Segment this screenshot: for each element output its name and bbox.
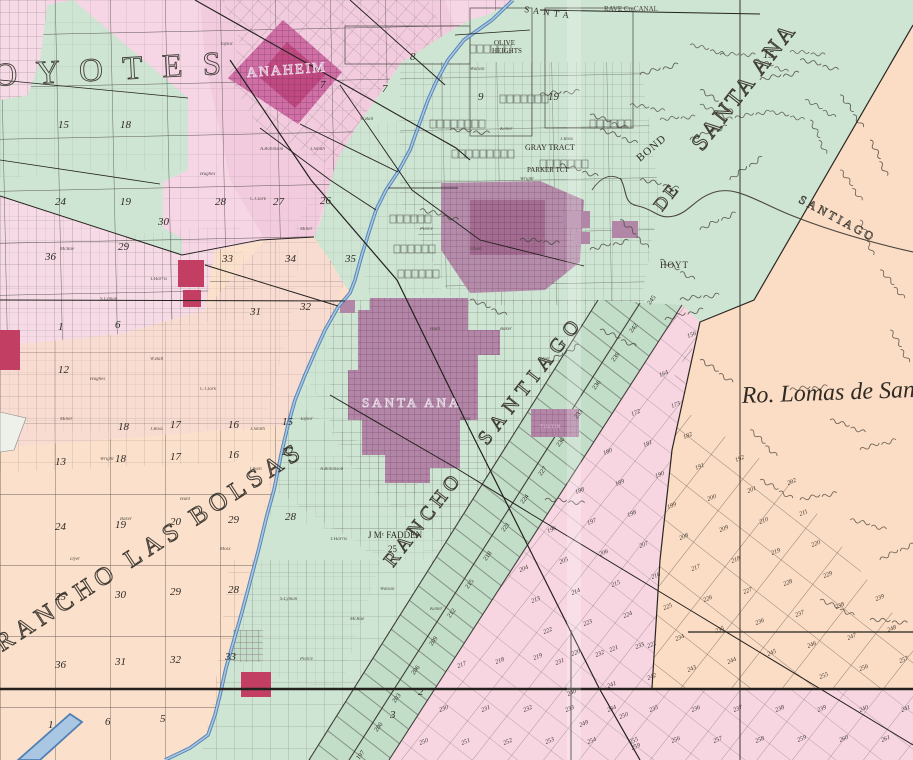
svg-text:Wright: Wright: [520, 177, 534, 182]
svg-text:Hughes: Hughes: [89, 377, 105, 382]
svg-text:Dyer: Dyer: [69, 557, 80, 562]
svg-text:24: 24: [55, 521, 67, 533]
svg-text:16: 16: [228, 419, 240, 431]
svg-text:Baker: Baker: [500, 327, 512, 332]
svg-text:27: 27: [273, 196, 285, 208]
svg-text:29: 29: [118, 241, 130, 253]
svg-text:22: 22: [282, 446, 294, 458]
svg-text:A.Robinson: A.Robinson: [319, 467, 344, 472]
svg-text:1: 1: [48, 719, 54, 731]
svg-text:OLIVE: OLIVE: [494, 39, 515, 47]
svg-text:W.Ball: W.Ball: [150, 357, 164, 362]
svg-text:McRae: McRae: [349, 617, 365, 622]
svg-text:GRAY TRACT: GRAY TRACT: [525, 143, 575, 152]
svg-text:Miller: Miller: [299, 227, 313, 232]
svg-text:25: 25: [388, 544, 398, 554]
svg-text:28: 28: [285, 511, 297, 523]
svg-text:18: 18: [115, 453, 127, 465]
svg-text:Taylor: Taylor: [300, 417, 313, 422]
svg-text:25: 25: [55, 591, 67, 603]
svg-text:7: 7: [320, 79, 326, 91]
svg-text:Wright: Wright: [100, 457, 114, 462]
svg-text:9: 9: [478, 91, 484, 103]
svg-text:Hunt: Hunt: [179, 497, 191, 502]
svg-text:18: 18: [120, 119, 132, 131]
svg-text:6: 6: [105, 716, 111, 728]
svg-text:J.Smith: J.Smith: [250, 427, 265, 432]
svg-text:J.Ross: J.Ross: [560, 137, 573, 142]
svg-text:Pierce: Pierce: [419, 227, 434, 232]
svg-text:7: 7: [382, 83, 388, 95]
svg-text:36: 36: [54, 659, 67, 671]
svg-text:PARKER TCT: PARKER TCT: [527, 166, 570, 174]
svg-text:Watson: Watson: [470, 67, 485, 72]
svg-text:30: 30: [114, 589, 127, 601]
svg-text:C.Clark: C.Clark: [250, 197, 267, 202]
svg-text:16: 16: [228, 449, 240, 461]
svg-text:Olsen: Olsen: [470, 247, 482, 252]
svg-text:J.Ross: J.Ross: [150, 427, 163, 432]
svg-text:J Mᶜ FADDEN: J Mᶜ FADDEN: [368, 530, 423, 540]
svg-text:29: 29: [228, 514, 240, 526]
svg-text:C.Clark: C.Clark: [200, 387, 217, 392]
svg-text:Moss: Moss: [219, 547, 231, 552]
svg-text:33: 33: [221, 253, 234, 265]
svg-text:34: 34: [284, 253, 297, 265]
svg-text:35: 35: [344, 253, 357, 265]
svg-text:Taylor: Taylor: [220, 42, 233, 47]
svg-text:HEIGHTS: HEIGHTS: [492, 47, 522, 55]
svg-text:5: 5: [160, 713, 166, 725]
svg-text:18: 18: [118, 421, 130, 433]
svg-text:15: 15: [58, 119, 70, 131]
svg-text:Dyer: Dyer: [539, 357, 550, 362]
svg-text:Watson: Watson: [380, 587, 395, 592]
svg-text:17: 17: [170, 419, 182, 431]
svg-text:SANTA ANA: SANTA ANA: [362, 395, 461, 410]
svg-text:Keller: Keller: [499, 127, 513, 132]
svg-text:McRae: McRae: [59, 247, 75, 252]
svg-text:Miller: Miller: [59, 417, 73, 422]
svg-text:26: 26: [320, 195, 332, 207]
svg-text:T.Harris: T.Harris: [150, 277, 167, 282]
svg-text:31: 31: [114, 656, 126, 668]
svg-text:29: 29: [170, 586, 182, 598]
svg-text:Keller: Keller: [429, 607, 443, 612]
svg-text:8: 8: [410, 51, 416, 63]
svg-text:1: 1: [58, 321, 64, 333]
svg-text:13: 13: [55, 456, 67, 468]
svg-text:Hunt: Hunt: [429, 327, 441, 332]
svg-text:20: 20: [170, 516, 182, 528]
svg-text:30: 30: [157, 216, 170, 228]
svg-text:36: 36: [44, 251, 57, 263]
svg-text:17: 17: [170, 451, 182, 463]
svg-text:W.Ball: W.Ball: [360, 117, 374, 122]
svg-text:S.Lyman: S.Lyman: [100, 297, 118, 302]
svg-text:32: 32: [299, 301, 312, 313]
svg-text:15: 15: [763, 49, 775, 61]
svg-text:Hughes: Hughes: [199, 172, 215, 177]
svg-text:28: 28: [215, 196, 227, 208]
svg-text:Baker: Baker: [120, 517, 132, 522]
svg-text:Moss: Moss: [459, 417, 471, 422]
svg-text:T.Harris: T.Harris: [330, 537, 347, 542]
svg-text:3: 3: [389, 709, 396, 721]
svg-text:HOYT: HOYT: [660, 260, 689, 270]
svg-text:6: 6: [115, 319, 121, 331]
svg-text:31: 31: [249, 306, 261, 318]
svg-text:32: 32: [169, 654, 182, 666]
svg-text:33: 33: [224, 651, 237, 663]
svg-text:A.Robinson: A.Robinson: [259, 147, 284, 152]
svg-text:12: 12: [58, 364, 70, 376]
svg-text:S.Lyman: S.Lyman: [280, 597, 298, 602]
svg-text:J.Smith: J.Smith: [310, 147, 325, 152]
svg-text:24: 24: [55, 196, 67, 208]
svg-text:19: 19: [120, 196, 132, 208]
svg-text:2: 2: [418, 686, 424, 698]
svg-text:19: 19: [548, 91, 560, 103]
svg-text:28: 28: [228, 584, 240, 596]
svg-text:15: 15: [282, 416, 294, 428]
svg-text:TUSTIN: TUSTIN: [540, 425, 561, 430]
svg-text:Pierce: Pierce: [299, 657, 314, 662]
svg-text:RAVE Co CANAL: RAVE Co CANAL: [604, 5, 658, 13]
svg-text:Olsen: Olsen: [250, 467, 262, 472]
